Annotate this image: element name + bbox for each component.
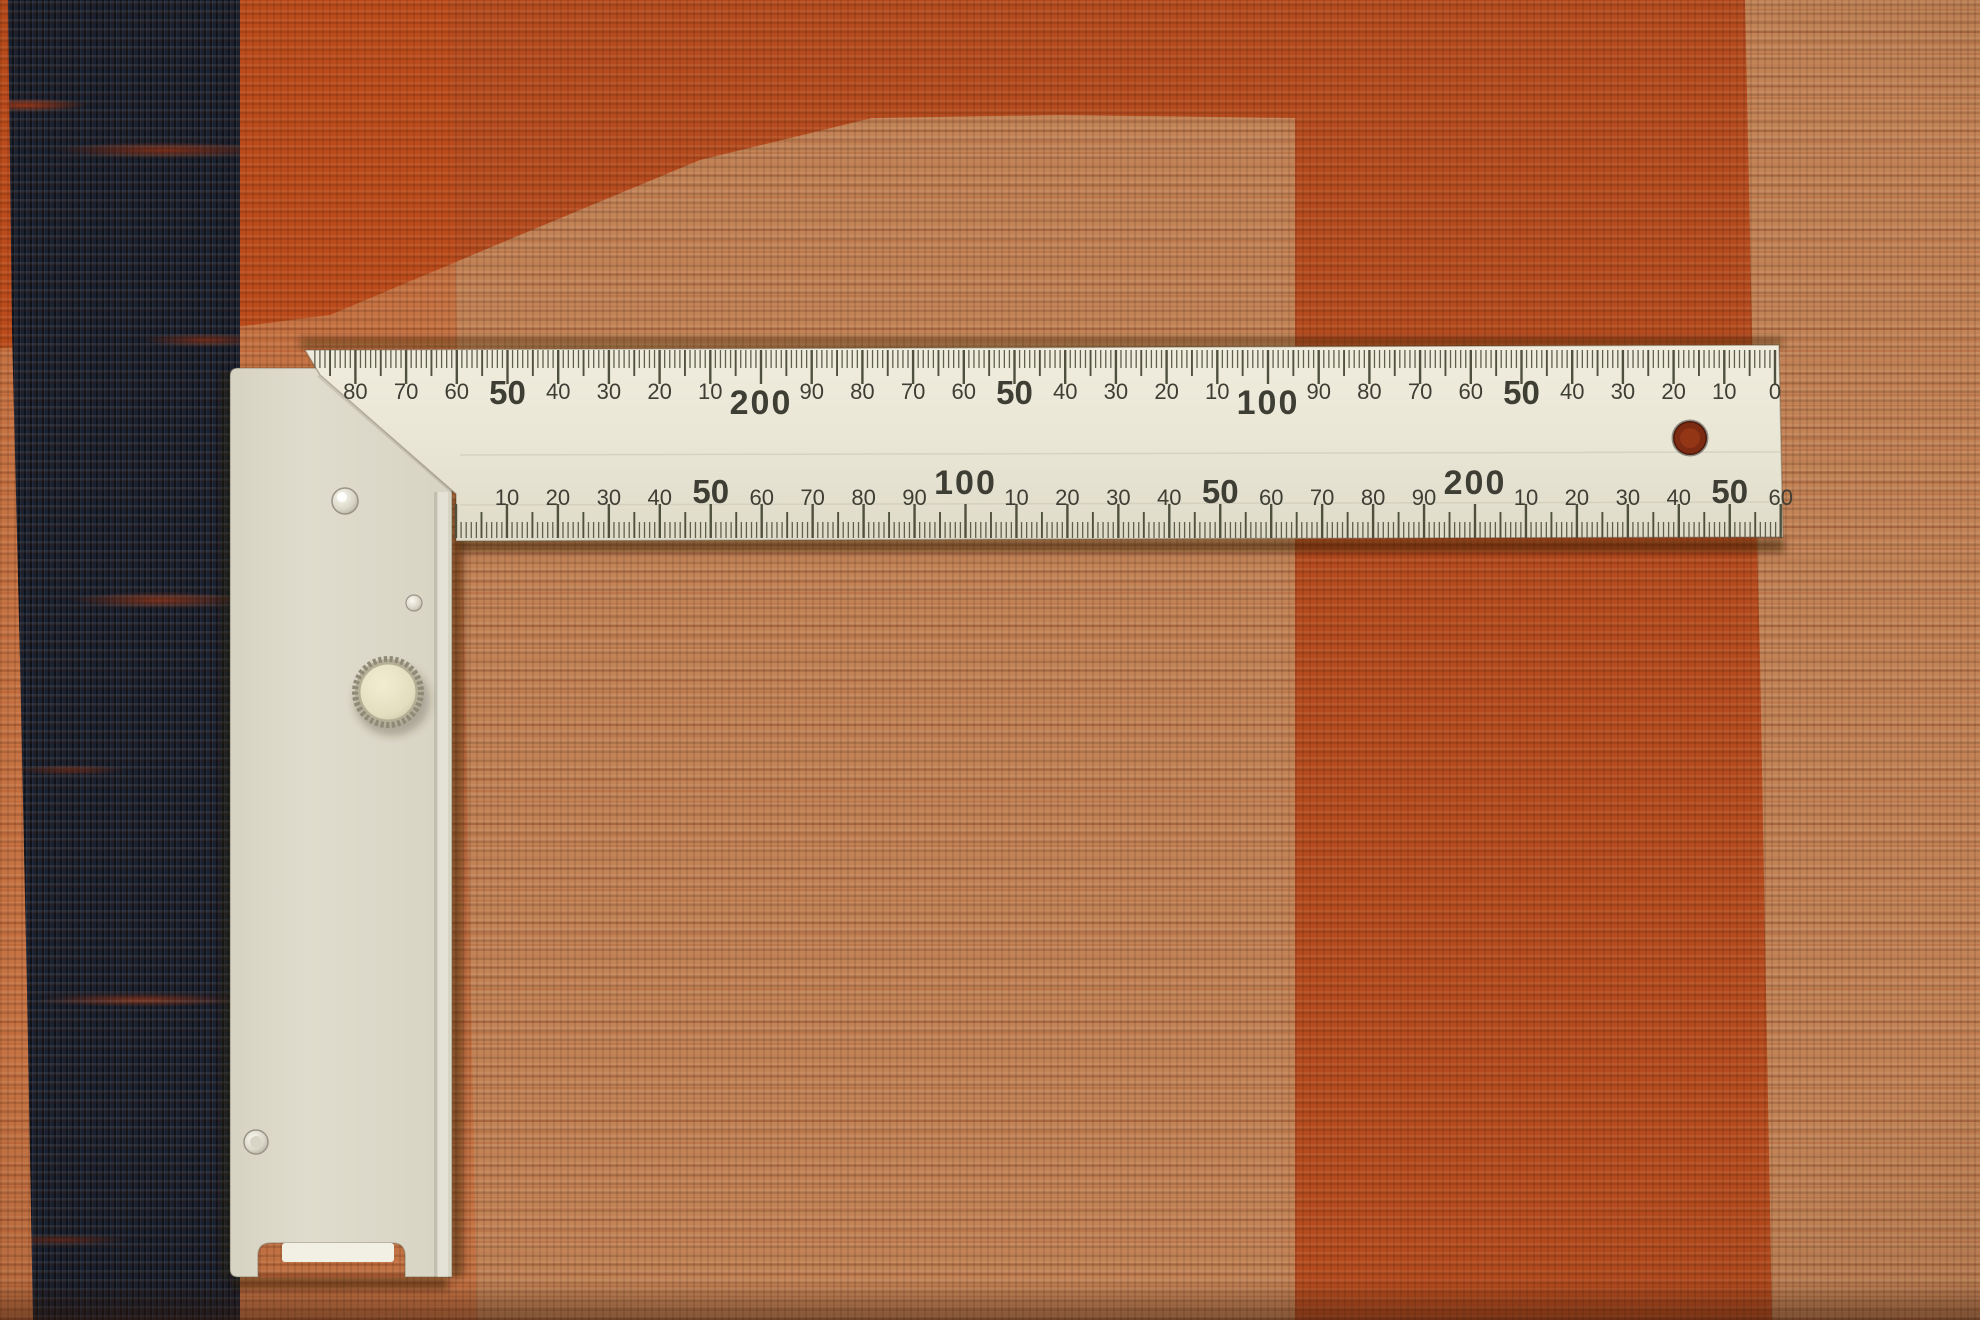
- svg-text:70: 70: [800, 485, 824, 510]
- svg-text:200: 200: [730, 384, 793, 422]
- svg-text:10: 10: [1514, 485, 1538, 510]
- svg-text:10: 10: [495, 485, 519, 510]
- rivet-bottom-center: [250, 1136, 262, 1148]
- svg-text:60: 60: [1768, 485, 1792, 510]
- svg-text:90: 90: [1412, 485, 1436, 510]
- svg-text:20: 20: [1055, 485, 1079, 510]
- svg-text:40: 40: [1053, 379, 1077, 404]
- svg-text:100: 100: [934, 464, 997, 502]
- svg-text:50: 50: [996, 374, 1033, 411]
- svg-text:80: 80: [1357, 379, 1381, 404]
- svg-text:30: 30: [1106, 485, 1130, 510]
- svg-text:60: 60: [1259, 485, 1283, 510]
- svg-text:30: 30: [1611, 379, 1635, 404]
- svg-text:30: 30: [1104, 379, 1128, 404]
- svg-text:70: 70: [394, 379, 418, 404]
- svg-text:10: 10: [698, 379, 722, 404]
- svg-text:40: 40: [1667, 485, 1691, 510]
- svg-text:80: 80: [850, 379, 874, 404]
- svg-text:20: 20: [647, 379, 671, 404]
- thumb-knob-face: [360, 664, 416, 720]
- svg-text:50: 50: [1202, 473, 1239, 510]
- hanging-hole-texture: [1680, 428, 1700, 448]
- handle-edge-shadow-line: [434, 492, 437, 1277]
- screw-small: [406, 595, 422, 611]
- svg-text:30: 30: [597, 485, 621, 510]
- svg-text:50: 50: [489, 374, 526, 411]
- svg-text:70: 70: [1408, 379, 1432, 404]
- svg-text:90: 90: [902, 485, 926, 510]
- svg-text:40: 40: [648, 485, 672, 510]
- notch-insert-strip: [282, 1243, 394, 1262]
- photo-canvas: 0102030405060708090100102030405060708090…: [0, 0, 1980, 1320]
- rivet-top-highlight: [337, 492, 347, 502]
- svg-text:50: 50: [1711, 473, 1748, 510]
- svg-text:80: 80: [1361, 485, 1385, 510]
- svg-text:20: 20: [1154, 379, 1178, 404]
- svg-text:200: 200: [1444, 464, 1507, 502]
- svg-text:10: 10: [1004, 485, 1028, 510]
- svg-text:100: 100: [1237, 384, 1300, 422]
- svg-text:30: 30: [1616, 485, 1640, 510]
- svg-text:20: 20: [1565, 485, 1589, 510]
- svg-text:60: 60: [445, 379, 469, 404]
- svg-text:60: 60: [749, 485, 773, 510]
- svg-text:60: 60: [1459, 379, 1483, 404]
- svg-text:90: 90: [1306, 379, 1330, 404]
- svg-text:20: 20: [546, 485, 570, 510]
- svg-text:90: 90: [799, 379, 823, 404]
- svg-text:30: 30: [597, 379, 621, 404]
- svg-text:80: 80: [851, 485, 875, 510]
- svg-text:70: 70: [901, 379, 925, 404]
- blade-body: [305, 345, 1783, 541]
- svg-text:40: 40: [546, 379, 570, 404]
- square-blade: [305, 345, 1783, 541]
- svg-text:50: 50: [692, 473, 729, 510]
- svg-text:60: 60: [952, 379, 976, 404]
- svg-text:10: 10: [1712, 379, 1736, 404]
- svg-text:10: 10: [1205, 379, 1229, 404]
- try-square: 0102030405060708090100102030405060708090…: [0, 0, 1980, 1320]
- svg-text:40: 40: [1560, 379, 1584, 404]
- handle-edge-highlight: [438, 492, 448, 1277]
- svg-text:0: 0: [1769, 379, 1781, 404]
- svg-text:70: 70: [1310, 485, 1334, 510]
- svg-text:20: 20: [1661, 379, 1685, 404]
- svg-text:80: 80: [343, 379, 367, 404]
- svg-text:50: 50: [1503, 374, 1540, 411]
- svg-text:40: 40: [1157, 485, 1181, 510]
